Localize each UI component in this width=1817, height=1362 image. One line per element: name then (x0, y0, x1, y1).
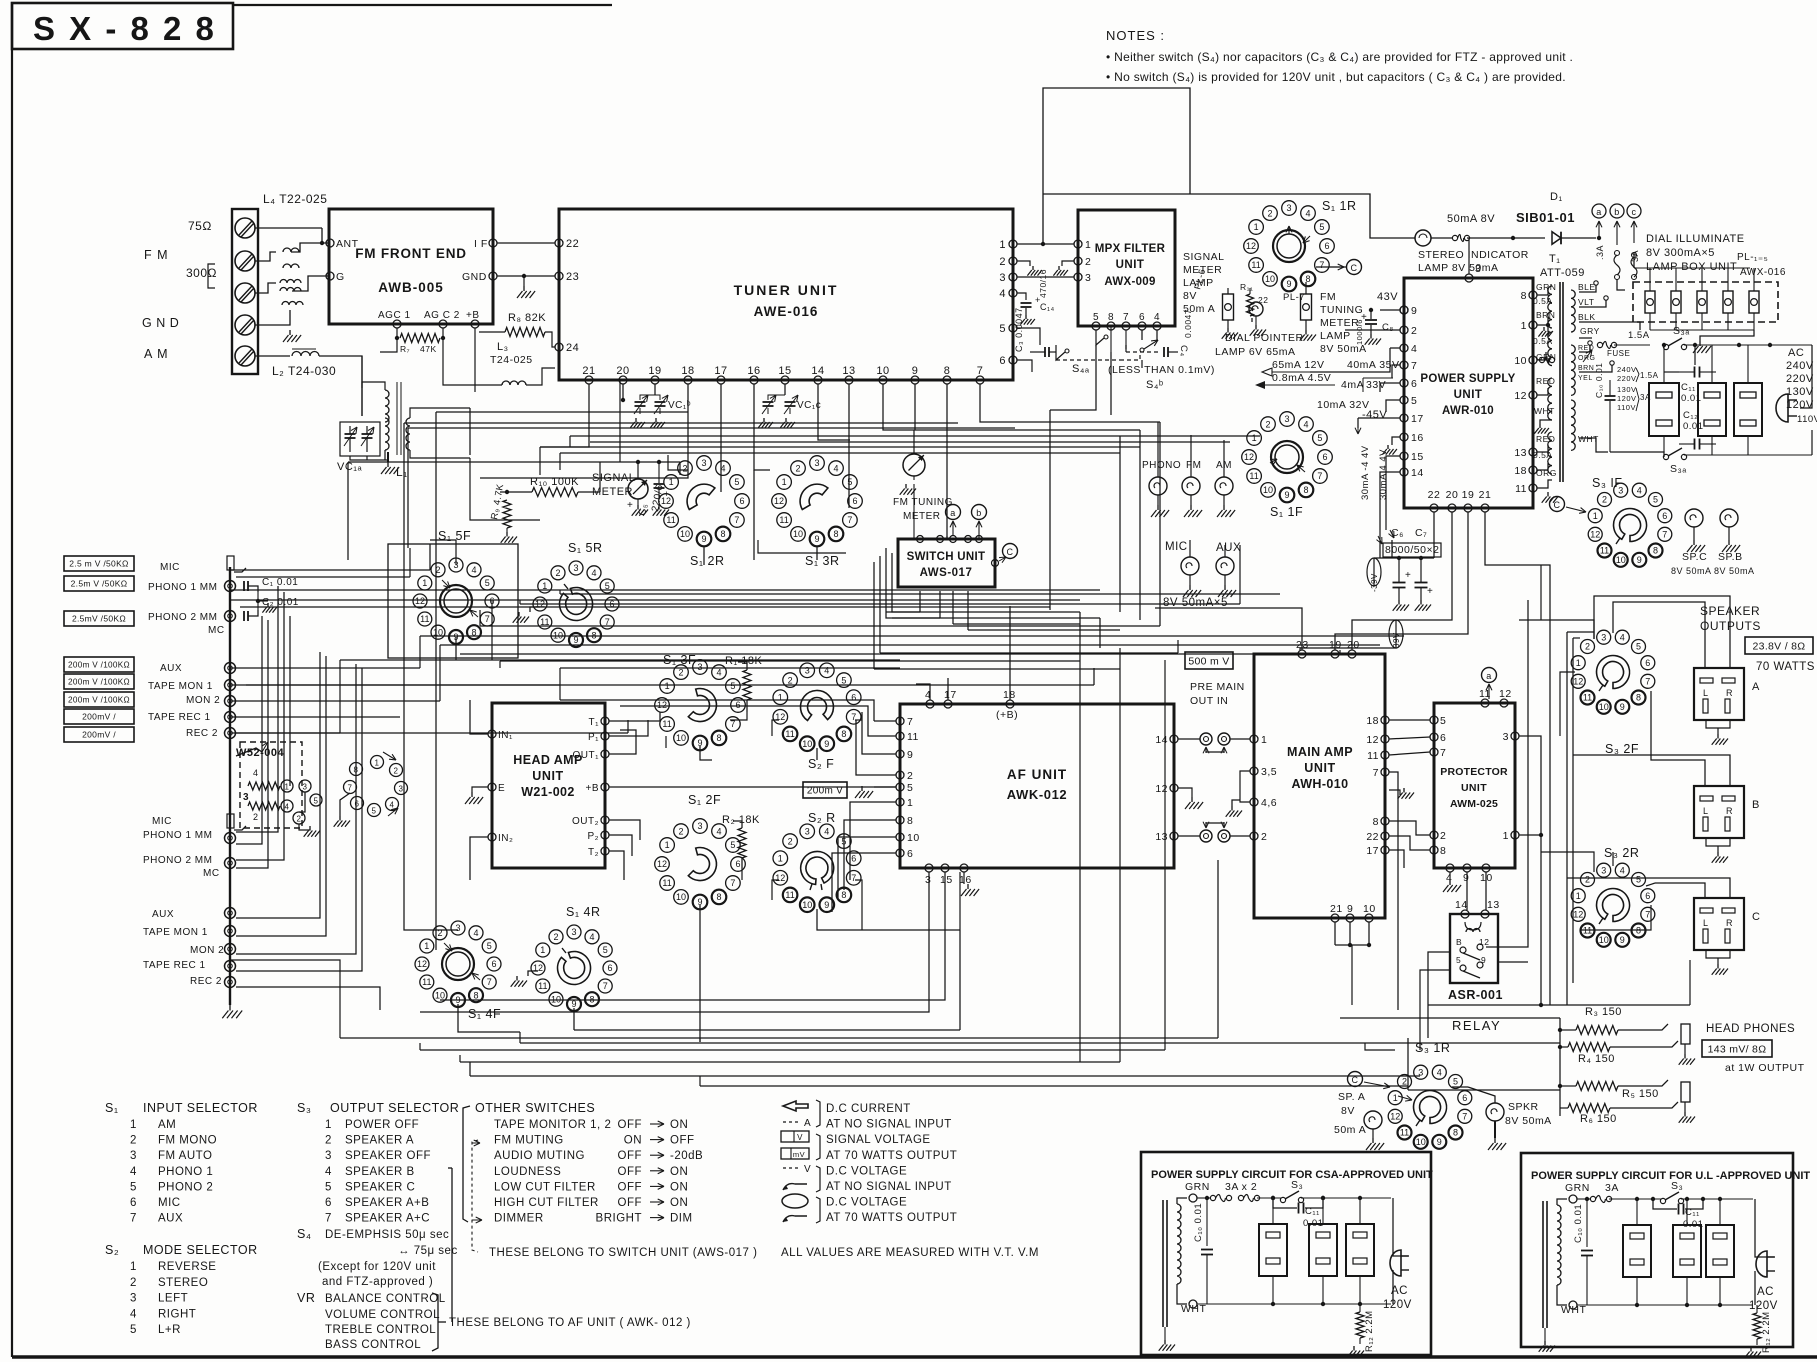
svg-text:C₁₁: C₁₁ (1681, 382, 1696, 393)
svg-text:200mV /: 200mV / (82, 730, 116, 740)
svg-text:L₁: L₁ (396, 465, 408, 479)
svg-text:at 1W OUTPUT: at 1W OUTPUT (1725, 1062, 1805, 1074)
svg-text:18: 18 (1514, 465, 1527, 477)
svg-text:3: 3 (1284, 414, 1289, 424)
svg-text:11: 11 (907, 731, 919, 743)
svg-text:A: A (1752, 681, 1760, 693)
svg-text:TUNER UNIT: TUNER UNIT (734, 282, 839, 298)
svg-text:300Ω: 300Ω (186, 266, 217, 280)
svg-text:TAPE MON 1: TAPE MON 1 (148, 681, 213, 692)
svg-text:75Ω: 75Ω (188, 219, 212, 233)
svg-text:TAPE REC 1: TAPE REC 1 (148, 712, 211, 723)
svg-text:11: 11 (1583, 693, 1592, 703)
svg-text:mV: mV (793, 1150, 805, 1159)
svg-text:1: 1 (375, 759, 380, 768)
svg-text:220V: 220V (1617, 374, 1637, 383)
svg-text:120V: 120V (1383, 1299, 1412, 1311)
svg-text:2.5mV /50KΩ: 2.5mV /50KΩ (72, 614, 126, 624)
svg-text:S X - 8 2 8: S X - 8 2 8 (33, 10, 216, 47)
svg-text:10: 10 (802, 900, 812, 910)
svg-text:ORG: ORG (1578, 355, 1595, 362)
svg-text:5: 5 (730, 681, 735, 691)
svg-text:0.01: 0.01 (1683, 421, 1704, 432)
svg-text:1: 1 (1085, 239, 1091, 251)
svg-text:3: 3 (571, 927, 576, 937)
svg-text:12: 12 (1573, 677, 1583, 687)
svg-text:8: 8 (716, 892, 721, 902)
svg-text:5: 5 (1440, 715, 1446, 727)
svg-text:T₁: T₁ (589, 717, 600, 728)
svg-text:↔ 75μ sec: ↔ 75μ sec (398, 1245, 458, 1257)
svg-text:4: 4 (824, 827, 829, 837)
svg-text:8: 8 (1653, 546, 1658, 556)
svg-text:C₁₀ 0.01: C₁₀ 0.01 (1594, 363, 1604, 398)
svg-text:4: 4 (824, 666, 829, 676)
svg-text:9: 9 (824, 739, 829, 749)
svg-text:8: 8 (1521, 290, 1527, 302)
svg-text:10: 10 (876, 365, 889, 377)
svg-text:-20dB: -20dB (670, 1150, 703, 1162)
svg-text:NOTES :: NOTES : (1106, 28, 1165, 43)
svg-text:13: 13 (842, 365, 855, 377)
svg-text:4mA: 4mA (1341, 379, 1364, 391)
svg-text:3: 3 (1085, 272, 1091, 284)
svg-text:8: 8 (720, 529, 725, 539)
svg-text:T24-025: T24-025 (490, 354, 533, 366)
svg-text:AWH-010: AWH-010 (1292, 777, 1349, 791)
svg-text:7: 7 (907, 716, 913, 728)
svg-text:110V: 110V (1797, 414, 1817, 425)
svg-text:SP. A: SP. A (1338, 1091, 1365, 1103)
svg-text:130V: 130V (1786, 386, 1814, 398)
svg-text:2: 2 (1265, 419, 1270, 429)
svg-text:AUX: AUX (160, 663, 182, 674)
svg-text:12: 12 (1479, 937, 1489, 947)
svg-text:1: 1 (285, 783, 290, 792)
svg-text:12: 12 (1590, 530, 1600, 540)
svg-text:12: 12 (1155, 783, 1168, 795)
svg-text:R: R (1726, 688, 1733, 698)
svg-text:12: 12 (1366, 734, 1379, 746)
svg-text:R₃ 150: R₃ 150 (1585, 1006, 1622, 1018)
svg-text:11: 11 (1600, 546, 1609, 556)
svg-text:AT NO SIGNAL INPUT: AT NO SIGNAL INPUT (826, 1119, 952, 1131)
svg-text:65mA 12V: 65mA 12V (1272, 359, 1324, 371)
svg-text:ASR-001: ASR-001 (1448, 988, 1503, 1002)
svg-text:5: 5 (1636, 875, 1641, 885)
svg-text:W21-002: W21-002 (521, 785, 575, 799)
svg-text:240V: 240V (1617, 365, 1637, 374)
svg-text:6: 6 (907, 848, 913, 860)
svg-text:11: 11 (785, 729, 794, 739)
svg-text:2: 2 (1261, 831, 1267, 843)
svg-text:1: 1 (665, 840, 670, 850)
svg-text:3: 3 (701, 458, 706, 468)
svg-text:5: 5 (999, 323, 1006, 335)
svg-text:17: 17 (1366, 845, 1379, 857)
svg-text:10: 10 (793, 529, 803, 539)
svg-text:BLE: BLE (1578, 282, 1596, 292)
svg-text:10: 10 (1514, 355, 1527, 367)
svg-text:2: 2 (1411, 325, 1417, 337)
svg-text:5: 5 (487, 941, 492, 951)
svg-text:6: 6 (1662, 511, 1667, 521)
svg-text:PHONO 2: PHONO 2 (158, 1181, 213, 1193)
svg-text:11: 11 (1583, 926, 1592, 936)
svg-text:AUX: AUX (1216, 542, 1241, 554)
svg-text:12: 12 (1499, 688, 1512, 700)
svg-text:WHT: WHT (1534, 406, 1555, 416)
svg-text:AUDIO MUTING: AUDIO MUTING (494, 1150, 585, 1162)
svg-text:4: 4 (1154, 312, 1160, 323)
svg-text:3: 3 (1503, 731, 1509, 743)
svg-text:• No switch (S₄) is provided: • No switch (S₄) is provided for 120V un… (1106, 70, 1566, 84)
svg-text:SPKR: SPKR (1508, 1101, 1539, 1113)
svg-text:4: 4 (716, 826, 721, 836)
svg-text:+B: +B (585, 783, 599, 794)
svg-text:S₃: S₃ (1671, 1180, 1683, 1192)
svg-text:143 mV/ 8Ω: 143 mV/ 8Ω (1708, 1043, 1767, 1055)
svg-text:47K: 47K (420, 344, 437, 354)
svg-text:TAPE REC 1: TAPE REC 1 (143, 960, 206, 971)
svg-text:10: 10 (907, 832, 920, 844)
svg-text:VR: VR (297, 1291, 315, 1305)
svg-text:70 WATTS: 70 WATTS (1756, 661, 1815, 673)
svg-text:12: 12 (1390, 1112, 1400, 1122)
svg-text:6: 6 (130, 1197, 137, 1209)
svg-text:UNIT: UNIT (1116, 259, 1145, 271)
svg-text:6: 6 (325, 1197, 332, 1209)
svg-text:10: 10 (1416, 1137, 1426, 1147)
svg-text:20: 20 (1446, 489, 1459, 501)
svg-text:8: 8 (841, 729, 846, 739)
svg-text:ANT: ANT (336, 238, 359, 250)
svg-text:9: 9 (1620, 702, 1625, 712)
svg-text:METER: METER (903, 511, 941, 522)
svg-text:7: 7 (1462, 1112, 1467, 1122)
svg-text:PHONO 1 MM: PHONO 1 MM (148, 582, 217, 593)
svg-text:1: 1 (1254, 222, 1259, 232)
svg-text:ON: ON (670, 1181, 688, 1193)
svg-text:9: 9 (1463, 872, 1469, 884)
svg-text:RELAY: RELAY (1452, 1018, 1501, 1033)
svg-text:1: 1 (424, 941, 429, 951)
svg-text:3: 3 (325, 1150, 332, 1162)
svg-text:1: 1 (782, 477, 787, 487)
svg-text:S₂ R: S₂ R (808, 811, 836, 825)
svg-text:220V: 220V (1786, 373, 1814, 385)
svg-text:MC: MC (208, 625, 225, 636)
svg-text:11: 11 (785, 890, 794, 900)
svg-text:1: 1 (1261, 734, 1267, 746)
svg-text:8: 8 (1440, 845, 1446, 857)
svg-text:43V: 43V (1377, 291, 1398, 303)
svg-text:3: 3 (243, 792, 249, 803)
svg-text:12: 12 (533, 963, 543, 973)
svg-text:3: 3 (697, 662, 702, 672)
svg-text:18: 18 (1366, 715, 1379, 727)
svg-text:LAMP: LAMP (1320, 330, 1351, 342)
svg-text:12: 12 (1246, 241, 1256, 251)
svg-text:10: 10 (802, 739, 812, 749)
svg-text:11: 11 (538, 981, 547, 991)
svg-text:12: 12 (1244, 452, 1254, 462)
svg-text:OUTPUT SELECTOR: OUTPUT SELECTOR (330, 1101, 459, 1115)
svg-text:+: + (1427, 586, 1433, 597)
svg-text:110V: 110V (1617, 403, 1636, 412)
svg-text:R₁₂ 2.2M: R₁₂ 2.2M (1364, 1310, 1375, 1352)
svg-text:3: 3 (805, 827, 810, 837)
svg-text:ON: ON (624, 1135, 642, 1147)
svg-text:BRN: BRN (1536, 310, 1555, 320)
svg-text:S₁ 1R: S₁ 1R (1322, 199, 1357, 213)
svg-text:D.C CURRENT: D.C CURRENT (826, 1103, 911, 1115)
svg-text:INPUT SELECTOR: INPUT SELECTOR (143, 1101, 258, 1115)
svg-text:9: 9 (1411, 305, 1417, 317)
svg-text:2: 2 (553, 932, 558, 942)
svg-text:2: 2 (678, 667, 683, 677)
svg-text:(LESS THAN 0.1mV): (LESS THAN 0.1mV) (1108, 364, 1215, 376)
svg-text:7: 7 (1123, 312, 1129, 323)
svg-text:PROTECTOR: PROTECTOR (1440, 766, 1508, 778)
svg-text:T₁: T₁ (1549, 253, 1560, 265)
svg-text:OFF: OFF (618, 1150, 643, 1162)
svg-text:-45V: -45V (1362, 409, 1387, 421)
svg-text:R₇: R₇ (400, 344, 410, 354)
svg-text:3: 3 (399, 785, 404, 794)
svg-text:5: 5 (130, 1181, 137, 1193)
svg-text:1000/6: 1000/6 (1355, 319, 1364, 345)
svg-text:D₁: D₁ (1550, 191, 1563, 203)
svg-text:SP.C: SP.C (1682, 551, 1707, 563)
svg-text:6: 6 (1322, 452, 1327, 462)
svg-text:AM: AM (158, 1119, 176, 1131)
svg-text:S₁: S₁ (105, 1101, 119, 1115)
svg-text:BLK: BLK (1578, 312, 1596, 322)
svg-text:11: 11 (662, 878, 671, 888)
svg-text:240V: 240V (1786, 360, 1814, 372)
svg-text:7: 7 (730, 878, 735, 888)
svg-text:1: 1 (1393, 1093, 1398, 1103)
svg-text:.3A: .3A (1595, 245, 1605, 260)
svg-text:6: 6 (1411, 378, 1417, 390)
svg-text:AWK-012: AWK-012 (1007, 787, 1068, 802)
svg-text:UNIT: UNIT (532, 769, 564, 783)
svg-text:7: 7 (1373, 767, 1379, 779)
svg-text:4: 4 (589, 932, 594, 942)
svg-text:8: 8 (1636, 926, 1641, 936)
svg-text:3: 3 (1601, 632, 1606, 642)
svg-text:TREBLE CONTROL: TREBLE CONTROL (325, 1324, 436, 1336)
svg-text:OTHER SWITCHES: OTHER SWITCHES (475, 1101, 595, 1115)
svg-text:2: 2 (1267, 208, 1272, 218)
svg-text:R₅ 150: R₅ 150 (1622, 1088, 1659, 1100)
svg-text:6: 6 (1324, 241, 1329, 251)
svg-text:PHONO 2 MM: PHONO 2 MM (148, 612, 217, 623)
svg-text:13: 13 (1155, 831, 1168, 843)
svg-text:1.5A: 1.5A (1640, 371, 1659, 380)
svg-text:7: 7 (1440, 747, 1446, 759)
svg-text:D.C VOLTAGE: D.C VOLTAGE (826, 1165, 907, 1177)
svg-text:9: 9 (1286, 279, 1291, 289)
svg-text:11: 11 (1515, 483, 1527, 495)
svg-text:11: 11 (779, 515, 788, 525)
svg-text:AG C 2: AG C 2 (424, 310, 460, 321)
svg-text:50m A: 50m A (1334, 1124, 1366, 1136)
svg-text:6: 6 (607, 963, 612, 973)
svg-text:2: 2 (1440, 830, 1446, 842)
svg-text:MON 2: MON 2 (186, 695, 220, 706)
svg-text:5: 5 (730, 840, 735, 850)
svg-text:8V 300mA×5: 8V 300mA×5 (1646, 247, 1715, 259)
svg-text:7: 7 (603, 981, 608, 991)
svg-text:C: C (1752, 911, 1760, 923)
svg-text:7: 7 (1645, 910, 1650, 920)
svg-text:1: 1 (130, 1119, 137, 1131)
svg-text:11: 11 (422, 977, 431, 987)
svg-text:SPEAKER A+B: SPEAKER A+B (345, 1197, 429, 1209)
svg-text:3: 3 (925, 874, 931, 886)
svg-text:1: 1 (1252, 433, 1257, 443)
svg-text:RIGHT: RIGHT (158, 1308, 196, 1320)
svg-text:5: 5 (325, 1181, 332, 1193)
svg-text:9: 9 (1347, 903, 1353, 915)
svg-text:7: 7 (1662, 530, 1667, 540)
svg-text:S₄ᵇ: S₄ᵇ (1146, 379, 1163, 391)
svg-text:1: 1 (778, 853, 783, 863)
svg-text:• Neither switch (S₄) nor ca: • Neither switch (S₄) nor capacitors (C₃… (1106, 50, 1573, 64)
svg-text:8V 50mA×5: 8V 50mA×5 (1163, 597, 1228, 609)
svg-text:DIMMER: DIMMER (494, 1213, 544, 1225)
svg-text:23.8V / 8Ω: 23.8V / 8Ω (1753, 640, 1806, 652)
svg-text:SP.B: SP.B (1718, 551, 1743, 563)
svg-text:S₁ 4R: S₁ 4R (566, 905, 601, 919)
svg-text:8: 8 (907, 815, 913, 827)
svg-text:470/16: 470/16 (1038, 269, 1048, 298)
svg-text:BRIGHT: BRIGHT (596, 1213, 642, 1225)
svg-text:8V: 8V (1341, 1105, 1355, 1117)
svg-text:LOW CUT FILTER: LOW CUT FILTER (494, 1181, 596, 1193)
svg-text:HIGH CUT FILTER: HIGH CUT FILTER (494, 1197, 599, 1209)
svg-text:18: 18 (681, 365, 694, 377)
svg-text:21: 21 (1479, 489, 1492, 501)
svg-text:10: 10 (676, 892, 686, 902)
svg-text:+B: +B (466, 310, 480, 321)
svg-text:FM: FM (1186, 460, 1201, 471)
svg-text:UNIT: UNIT (1304, 761, 1336, 775)
svg-text:S₃: S₃ (297, 1101, 311, 1115)
svg-text:OFF: OFF (618, 1181, 643, 1193)
svg-text:50m A: 50m A (1183, 303, 1215, 315)
svg-text:16: 16 (747, 365, 760, 377)
svg-text:S₁ 5R: S₁ 5R (568, 541, 603, 555)
svg-text:13: 13 (1514, 447, 1527, 459)
svg-text:4: 4 (1620, 632, 1625, 642)
svg-text:MIC: MIC (160, 562, 180, 573)
svg-text:7: 7 (734, 515, 739, 525)
svg-text:23: 23 (566, 271, 579, 283)
svg-text:22: 22 (1366, 831, 1379, 843)
svg-text:8: 8 (833, 529, 838, 539)
svg-text:C₇: C₇ (1415, 527, 1427, 539)
svg-text:11: 11 (1251, 260, 1260, 270)
svg-text:120V: 120V (1786, 399, 1814, 411)
svg-text:R₈ 82K: R₈ 82K (508, 312, 546, 324)
svg-text:2: 2 (130, 1277, 137, 1289)
svg-text:200m V /100KΩ: 200m V /100KΩ (68, 678, 130, 687)
svg-text:3: 3 (303, 783, 308, 792)
svg-text:S₄: S₄ (297, 1227, 311, 1241)
svg-text:DE-EMPHSIS 50μ sec: DE-EMPHSIS 50μ sec (325, 1229, 449, 1241)
svg-text:2: 2 (678, 826, 683, 836)
svg-text:1: 1 (907, 797, 913, 809)
svg-text:LAMP 8V 50mA: LAMP 8V 50mA (1418, 262, 1499, 274)
svg-text:R₁₁: R₁₁ (1240, 282, 1253, 292)
svg-text:SPEAKER A: SPEAKER A (345, 1135, 414, 1147)
svg-text:C₈: C₈ (1382, 322, 1394, 333)
svg-text:7: 7 (1645, 677, 1650, 687)
svg-text:8V 50mA: 8V 50mA (1714, 566, 1755, 576)
svg-text:LOUDNESS: LOUDNESS (494, 1166, 561, 1178)
svg-text:WHT: WHT (1181, 1303, 1206, 1315)
svg-text:3: 3 (805, 666, 810, 676)
svg-text:GRY: GRY (1580, 326, 1600, 336)
svg-text:STEREO INDICATOR: STEREO INDICATOR (1418, 249, 1529, 261)
svg-text:S₃ 2F: S₃ 2F (1605, 742, 1639, 756)
svg-text:8000/50×2: 8000/50×2 (1385, 544, 1439, 556)
svg-text:MON 2: MON 2 (190, 945, 224, 956)
svg-text:ON: ON (670, 1119, 688, 1131)
svg-text:L: L (1703, 688, 1709, 698)
svg-text:3A x 2: 3A x 2 (1225, 1181, 1257, 1193)
svg-text:OUT₂: OUT₂ (572, 816, 599, 827)
svg-text:4: 4 (130, 1166, 137, 1178)
svg-text:YEL: YEL (1578, 375, 1593, 382)
svg-text:2: 2 (788, 675, 793, 685)
svg-text:3: 3 (814, 458, 819, 468)
svg-text:15: 15 (1411, 451, 1424, 463)
svg-text:4: 4 (390, 801, 395, 810)
svg-text:0.5A: 0.5A (1533, 296, 1553, 306)
svg-text:R: R (1726, 806, 1733, 816)
svg-text:C₁₀ 0.01: C₁₀ 0.01 (1573, 1204, 1584, 1243)
svg-text:P₁: P₁ (588, 732, 599, 743)
svg-text:FUSE: FUSE (1607, 349, 1630, 358)
svg-text:11: 11 (666, 515, 675, 525)
svg-text:12: 12 (774, 496, 784, 506)
svg-text:4: 4 (999, 288, 1006, 300)
svg-text:GRN: GRN (1185, 1181, 1210, 1193)
svg-text:OFF: OFF (670, 1135, 695, 1147)
svg-text:1: 1 (325, 1119, 332, 1131)
svg-text:FM FRONT END: FM FRONT END (355, 246, 467, 261)
svg-text:2: 2 (907, 770, 913, 782)
svg-text:4: 4 (1305, 208, 1310, 218)
svg-text:12: 12 (657, 700, 667, 710)
svg-text:OUT₁: OUT₁ (573, 750, 600, 761)
svg-text:S₃ₐ: S₃ₐ (1670, 463, 1687, 475)
svg-text:THESE BELONG TO AF UNIT ( A: THESE BELONG TO AF UNIT ( AWK- 012 ) (449, 1317, 691, 1329)
svg-text:4: 4 (1446, 872, 1452, 884)
svg-text:3: 3 (1286, 203, 1291, 213)
svg-text:SIB01-01: SIB01-01 (1516, 210, 1575, 225)
svg-text:POWER SUPPLY: POWER SUPPLY (1420, 373, 1515, 385)
svg-text:10: 10 (676, 733, 686, 743)
svg-text:6: 6 (852, 496, 857, 506)
svg-text:16: 16 (959, 874, 972, 886)
svg-text:METER: METER (592, 486, 633, 498)
svg-text:9: 9 (701, 534, 706, 544)
